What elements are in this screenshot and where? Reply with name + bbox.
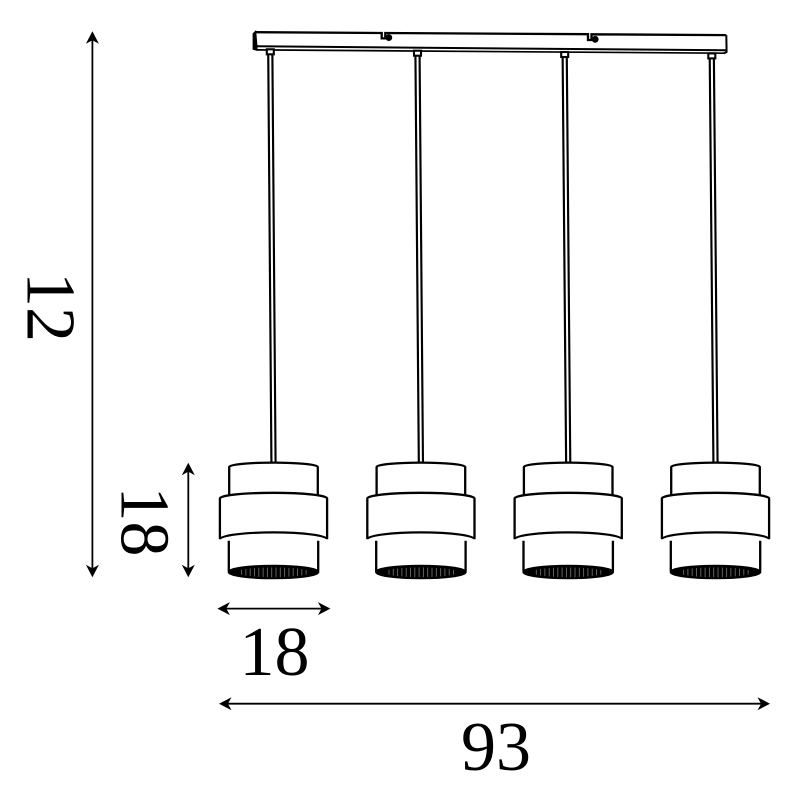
- svg-text:12: 12: [12, 272, 89, 342]
- svg-text:18: 18: [106, 487, 183, 557]
- svg-text:93: 93: [461, 709, 531, 786]
- svg-text:18: 18: [240, 614, 310, 691]
